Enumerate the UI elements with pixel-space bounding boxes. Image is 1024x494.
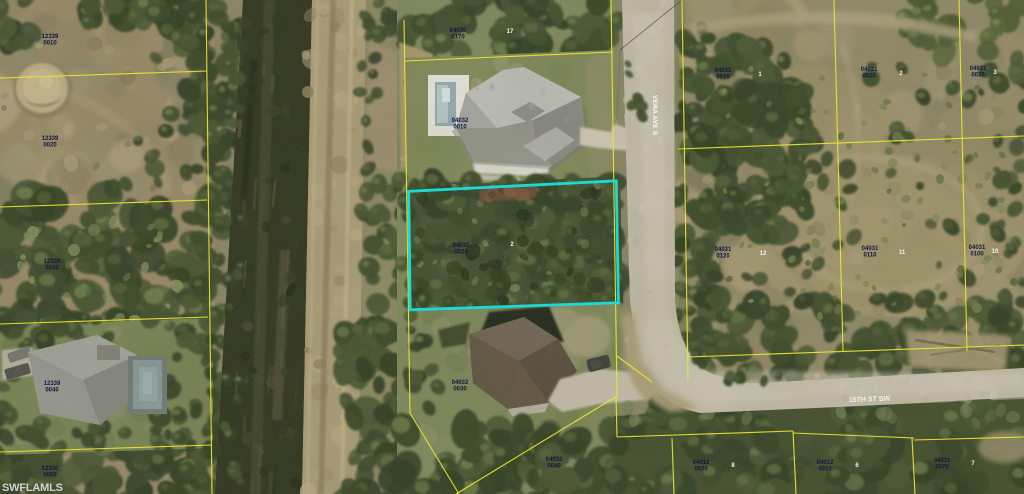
svg-text:04031: 04031 [715,247,732,253]
svg-text:0020: 0020 [694,467,708,473]
svg-text:11: 11 [899,250,906,256]
svg-text:SWFLAMLS: SWFLAMLS [2,482,63,494]
svg-text:0030: 0030 [45,266,59,272]
svg-text:04032: 04032 [453,243,470,249]
svg-text:VERA AVE S: VERA AVE S [651,95,658,136]
svg-text:04012: 04012 [693,460,710,466]
svg-text:0020: 0020 [862,74,876,80]
svg-text:04031: 04031 [970,66,987,72]
svg-text:0170: 0170 [451,35,465,41]
svg-text:04032: 04032 [452,118,469,124]
svg-text:12339: 12339 [42,34,59,40]
svg-text:12339: 12339 [42,136,59,142]
svg-text:0050: 0050 [43,473,57,479]
svg-text:0010: 0010 [453,125,467,131]
svg-text:04032: 04032 [452,380,469,386]
svg-text:17: 17 [507,29,514,35]
svg-text:0110: 0110 [863,253,877,259]
svg-text:0020: 0020 [43,143,57,149]
svg-text:12339: 12339 [44,381,61,387]
svg-text:0020: 0020 [454,250,468,256]
svg-text:0070: 0070 [935,465,949,471]
svg-text:0010: 0010 [716,75,730,81]
svg-text:04031: 04031 [862,246,879,252]
svg-text:0030: 0030 [971,73,985,79]
svg-text:15TH ST SW: 15TH ST SW [849,396,891,404]
svg-text:0010: 0010 [818,467,832,473]
svg-text:0120: 0120 [716,254,730,260]
svg-text:04032: 04032 [546,457,563,463]
svg-text:0040: 0040 [547,464,561,470]
svg-text:04031: 04031 [715,68,732,74]
svg-text:12339: 12339 [44,259,61,265]
svg-text:04012: 04012 [817,460,834,466]
svg-text:0040: 0040 [45,388,59,394]
svg-text:04030: 04030 [450,28,467,34]
svg-text:04031: 04031 [861,67,878,73]
svg-text:12: 12 [760,251,767,257]
svg-text:04031: 04031 [969,245,986,251]
svg-text:12330: 12330 [42,466,59,472]
svg-text:0010: 0010 [43,41,57,47]
svg-text:10: 10 [992,249,999,255]
svg-text:0100: 0100 [970,252,984,258]
svg-text:04011: 04011 [934,458,951,464]
svg-text:0030: 0030 [453,387,467,393]
